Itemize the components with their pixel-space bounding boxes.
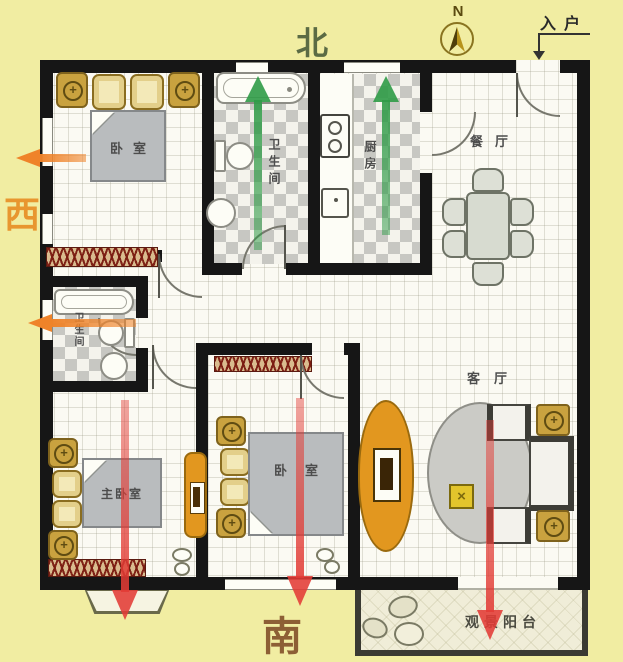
master-south-arrow-body xyxy=(121,400,129,592)
balcony-wall-bottom xyxy=(355,650,588,656)
dining-chair xyxy=(472,168,504,192)
entry-pointer-arrowhead xyxy=(533,51,545,60)
dining-chair xyxy=(510,198,534,226)
blanket-fold xyxy=(84,460,106,482)
compass-n-letter: N xyxy=(448,3,468,20)
side-table: + xyxy=(536,510,570,542)
bedroom-south-arrow-body xyxy=(296,398,304,578)
nightstand: + xyxy=(216,508,246,538)
toilet-tank xyxy=(214,140,226,172)
west-bedroom-arrow-body xyxy=(38,154,86,162)
sink-west xyxy=(100,352,128,380)
bedroom-nw-window-2 xyxy=(42,214,53,244)
dining-label: 餐厅 xyxy=(454,131,524,150)
wall-kitchen-dining-upper xyxy=(420,60,432,112)
dining-chair xyxy=(472,262,504,286)
west-bath-arrow-head xyxy=(28,314,52,332)
blanket-fold xyxy=(250,512,272,534)
balcony-wall-right xyxy=(582,588,588,654)
west-label: 西 xyxy=(4,186,40,238)
master-plant xyxy=(172,548,192,562)
pillow xyxy=(220,478,250,506)
floorplan-page: { "compass": { "letter": "N" }, "entry":… xyxy=(0,0,623,662)
master-plant xyxy=(174,562,190,576)
master-south-arrow-head xyxy=(112,590,138,620)
burner xyxy=(328,121,342,135)
tv xyxy=(373,448,401,502)
mirror-inner xyxy=(193,487,200,507)
wall-bathn-kitchen xyxy=(308,60,320,275)
west-bedroom-arrow-head xyxy=(16,149,40,167)
south-label: 南 xyxy=(262,604,302,662)
drain xyxy=(334,198,338,202)
wall-kitchen-dining-lower xyxy=(420,173,432,275)
north-label: 北 xyxy=(296,18,328,64)
blanket-fold xyxy=(92,112,114,134)
pillow xyxy=(52,500,82,528)
pillow xyxy=(92,74,126,110)
pillow xyxy=(52,470,82,498)
bath-north-door-leaf xyxy=(284,225,286,269)
master-door-leaf xyxy=(152,345,154,389)
bedroom-s-door-leaf xyxy=(300,355,302,399)
kitchen-counter xyxy=(320,74,354,264)
wall-bedroomnw-bathn xyxy=(202,60,214,275)
bedroom-s-window xyxy=(225,579,336,590)
north-bath-arrow-head xyxy=(245,76,271,102)
kitchen-window xyxy=(344,62,400,73)
bedroom-nw-label: 卧室 xyxy=(90,138,166,157)
nightstand: + xyxy=(48,438,78,468)
tv-cabinet xyxy=(358,400,414,552)
north-kitchen-arrow-body xyxy=(382,100,390,235)
north-kitchen-arrow-head xyxy=(373,76,399,102)
north-bath-arrow-body xyxy=(254,100,262,250)
pillow xyxy=(220,448,250,476)
bedroom-s-wardrobe xyxy=(214,356,312,372)
floor-plan: 观景阳台 + + xyxy=(0,0,623,662)
side-table: + xyxy=(536,404,570,436)
dining-chair xyxy=(442,198,466,226)
nightstand: + xyxy=(56,72,88,108)
dresser-mirror xyxy=(190,482,205,514)
living-label: 客厅 xyxy=(452,368,522,387)
burner xyxy=(328,139,342,153)
tv-screen xyxy=(380,458,393,490)
kitchen-sink xyxy=(321,188,349,218)
wall-bathw-top xyxy=(40,276,148,287)
bedroom-nw-door-leaf xyxy=(158,254,160,298)
dining-chair xyxy=(442,230,466,258)
bedroom-s-plant xyxy=(324,560,340,574)
west-bath-arrow-body xyxy=(50,319,136,327)
floor-cushion: × xyxy=(449,484,474,509)
wall-bathw-right-upper xyxy=(136,276,148,318)
nightstand: + xyxy=(216,416,246,446)
living-south-arrow-head xyxy=(477,610,503,640)
entry-door-leaf xyxy=(516,73,518,117)
entry-pointer-h xyxy=(538,33,590,35)
bathtub-drain xyxy=(287,87,292,92)
nightstand: + xyxy=(48,530,78,560)
living-south-arrow-body xyxy=(486,420,494,612)
toilet-bowl xyxy=(226,142,254,170)
nightstand: + xyxy=(168,72,200,108)
pillow xyxy=(130,74,164,110)
bath-north-label: 卫生间 xyxy=(266,138,283,238)
balcony-label: 观景阳台 xyxy=(448,612,558,632)
entry-pointer-v xyxy=(538,33,540,53)
bedroom-south-arrow-head xyxy=(287,576,313,606)
balcony-stone xyxy=(394,622,424,646)
dining-chair xyxy=(510,230,534,258)
stove xyxy=(320,114,350,158)
balcony-opening xyxy=(458,577,558,590)
dining-table xyxy=(466,192,510,260)
wall-right xyxy=(577,60,590,590)
kitchen-label: 厨房 xyxy=(362,140,379,204)
compass-icon xyxy=(440,22,474,56)
bathtub-west xyxy=(54,289,134,315)
sofa xyxy=(529,436,574,511)
wall-bathn-bottom-left xyxy=(202,263,242,275)
wall-bedrooms-top xyxy=(196,343,312,355)
dresser xyxy=(184,452,207,538)
balcony-wall-left xyxy=(355,588,361,654)
sink xyxy=(206,198,236,228)
wall-bathn-kitchen-bottom xyxy=(286,263,432,275)
master-radiator xyxy=(48,559,146,577)
wall-bathw-bottom xyxy=(40,381,148,392)
entry-label: 入户 xyxy=(540,10,596,34)
hall-radiator xyxy=(46,247,158,267)
